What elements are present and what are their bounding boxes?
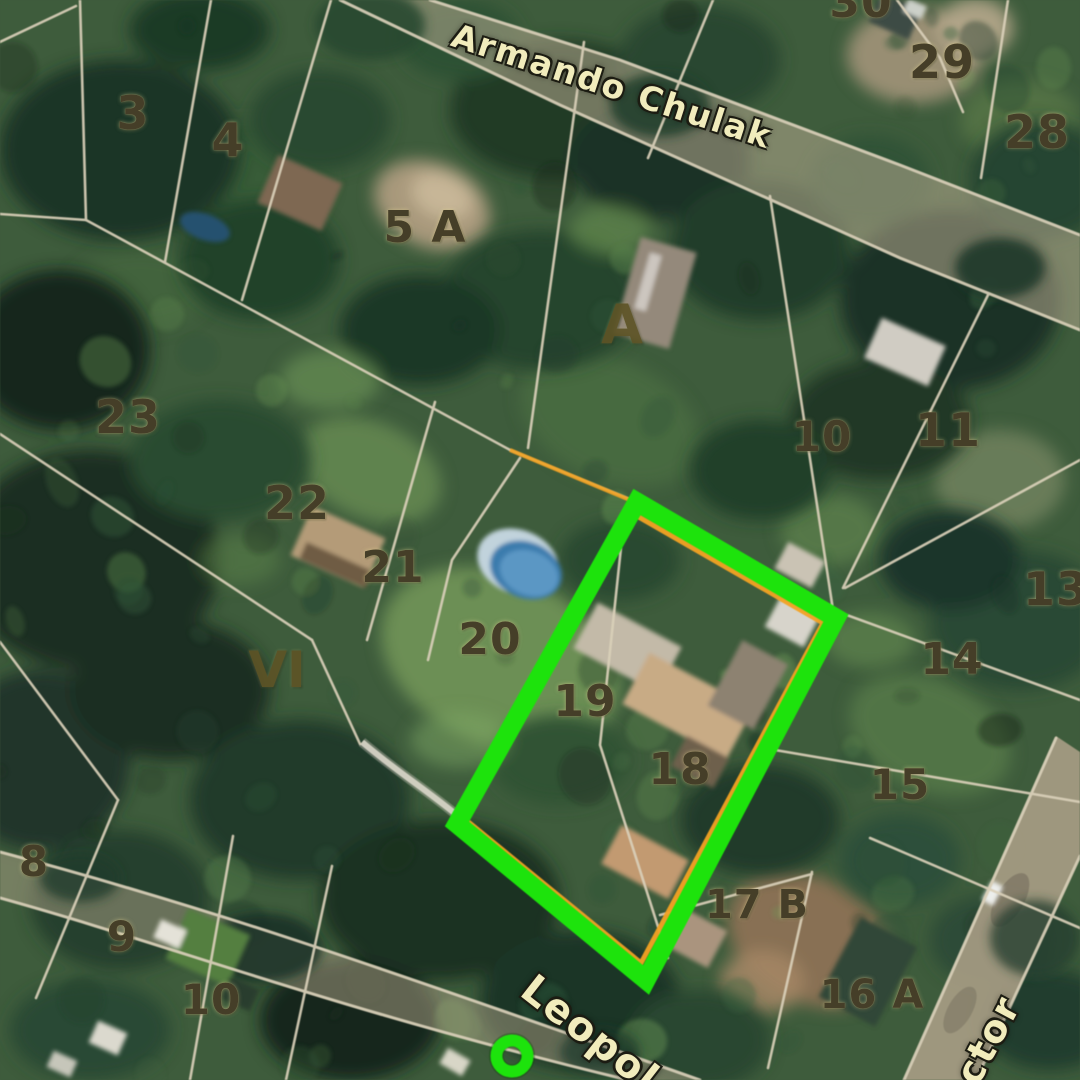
parcel-label-3: 3	[116, 90, 149, 136]
parcel-label-8: 8	[19, 841, 49, 883]
parcel-label-13: 13	[1023, 566, 1080, 612]
parcel-label-16a: 16 A	[820, 975, 925, 1015]
parcel-label-23: 23	[95, 394, 161, 440]
parcel-label-5a: 5 A	[384, 206, 467, 250]
map-canvas[interactable]: 345 A302928232221201918101113141517 B16 …	[0, 0, 1080, 1080]
parcel-label-20: 20	[458, 618, 521, 662]
street-label-armando-chulak: Armando Chulak	[448, 19, 776, 154]
parcel-label-22: 22	[264, 480, 330, 526]
parcel-label-10: 10	[792, 416, 852, 458]
parcel-label-21: 21	[361, 546, 424, 590]
parcel-label-4: 4	[211, 117, 244, 163]
section-label-a: A	[601, 298, 643, 352]
parcel-label-17b: 17 B	[705, 885, 809, 925]
parcel-label-15: 15	[870, 764, 930, 806]
map-labels-layer: 345 A302928232221201918101113141517 B16 …	[0, 0, 1080, 1080]
section-label-vi: VI	[248, 645, 305, 695]
parcel-label-11: 11	[915, 407, 981, 453]
parcel-label-10: 10	[181, 979, 241, 1021]
parcel-label-14: 14	[920, 638, 983, 682]
street-label-ctor: ctor	[949, 990, 1026, 1080]
parcel-label-30: 30	[829, 0, 892, 25]
parcel-label-29: 29	[909, 39, 975, 85]
parcel-label-9: 9	[107, 916, 137, 958]
parcel-label-28: 28	[1004, 109, 1070, 155]
parcel-label-18: 18	[648, 748, 711, 792]
parcel-label-19: 19	[553, 680, 616, 724]
street-label-leopol: Leopol	[514, 968, 666, 1080]
